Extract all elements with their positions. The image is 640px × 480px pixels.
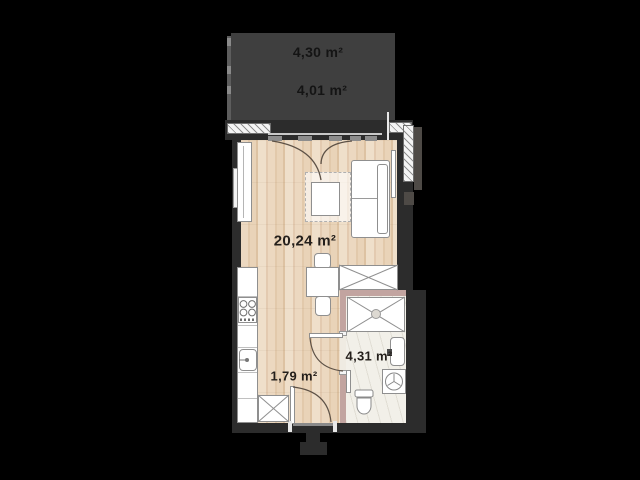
- bathroom-door-arc: [310, 338, 343, 371]
- wardrobe-cross-hall: [258, 395, 289, 422]
- shower-drain-icon: [372, 310, 381, 319]
- entrance-door-arc: [293, 387, 331, 422]
- stove-burners-icon: [240, 301, 255, 321]
- hallway-area-label: 1,79 m²: [271, 369, 318, 384]
- balcony-door-arc-left: [272, 141, 321, 180]
- wardrobe-cross-top: [339, 265, 398, 290]
- bathroom-area-label: 4,31 m²: [346, 349, 393, 364]
- toilet-icon: [355, 390, 373, 414]
- washing-machine-drum-icon: [386, 373, 403, 390]
- floor-plan: 4,30 m² 4,01 m²: [0, 0, 640, 480]
- sink-tap-icon: [239, 358, 249, 362]
- balcony-door-arc-right: [321, 141, 352, 164]
- living-room-area-label: 20,24 m²: [274, 233, 336, 250]
